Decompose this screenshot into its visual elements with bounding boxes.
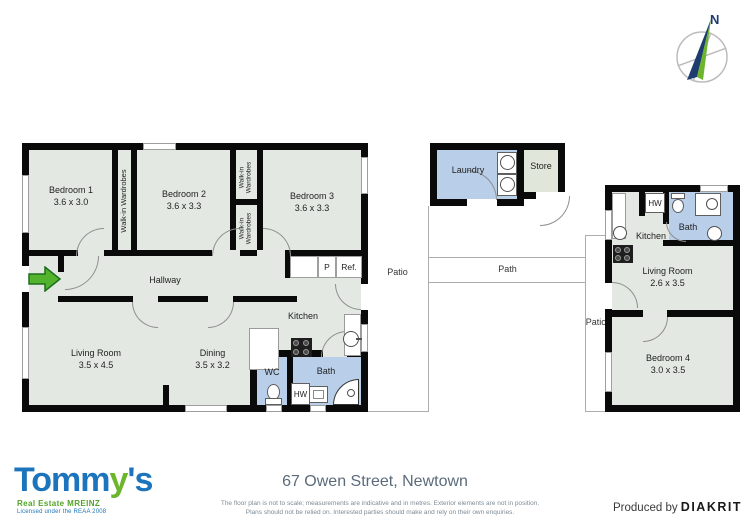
burner bbox=[303, 340, 309, 346]
room-label-kitchen-unit: Kitchen bbox=[630, 230, 672, 242]
wardrobe-label-line1: Walk-in bbox=[239, 151, 246, 205]
room-name: Laundry bbox=[437, 164, 499, 176]
brand-text: Tomm bbox=[14, 461, 109, 499]
wall bbox=[605, 405, 740, 412]
shower-drain-icon bbox=[706, 198, 718, 210]
room-label-bedroom1: Bedroom 1 3.6 x 3.0 bbox=[29, 184, 113, 208]
patio-outline bbox=[428, 206, 429, 412]
room-name: Living Room bbox=[36, 347, 156, 359]
brand-y: y bbox=[109, 461, 127, 499]
wall bbox=[58, 296, 133, 302]
burner bbox=[615, 255, 621, 261]
wall bbox=[430, 143, 437, 206]
window bbox=[185, 405, 227, 412]
wall bbox=[517, 150, 524, 206]
door-arc-store bbox=[540, 196, 570, 226]
room-dims: 3.6 x 3.3 bbox=[263, 202, 361, 214]
patio-outline bbox=[368, 411, 429, 412]
window bbox=[361, 324, 368, 352]
room-dims: 3.6 x 3.0 bbox=[29, 196, 113, 208]
wall bbox=[524, 192, 536, 199]
wardrobe-label-line2: Wardrobes bbox=[246, 151, 253, 205]
room-name: Bath bbox=[668, 221, 708, 233]
burner bbox=[624, 255, 630, 261]
room-label-hallway: Hallway bbox=[120, 274, 210, 286]
room-name: WC bbox=[258, 366, 286, 378]
burner bbox=[303, 349, 309, 355]
room-label-bath-main: Bath bbox=[302, 365, 350, 377]
burner bbox=[293, 340, 299, 346]
window bbox=[310, 405, 326, 412]
window bbox=[22, 327, 29, 379]
room-label-bedroom2: Bedroom 2 3.6 x 3.3 bbox=[137, 188, 231, 212]
wardrobe-label-line1: Walk-in bbox=[239, 202, 246, 256]
room-name: Bedroom 2 bbox=[137, 188, 231, 200]
wardrobe-label-3: Walk-in Wardrobes bbox=[239, 202, 254, 256]
vanity-basin bbox=[313, 390, 324, 399]
hw-label-unit: HW bbox=[645, 193, 665, 213]
wardrobe-label-2: Walk-in Wardrobes bbox=[239, 151, 254, 205]
property-address: 67 Owen Street, Newtown bbox=[180, 473, 570, 491]
room-dims: 3.0 x 3.5 bbox=[612, 364, 724, 376]
path-outline bbox=[428, 282, 585, 283]
disclaimer-line2: Plans should not be relied on. Intereste… bbox=[115, 508, 645, 517]
brand-logo: Tommy's bbox=[14, 461, 152, 500]
patio-outline bbox=[585, 235, 605, 236]
room-name: Bedroom 4 bbox=[612, 352, 724, 364]
area-label-path: Path bbox=[480, 263, 535, 275]
brand-license: Licensed under the REAA 2008 bbox=[17, 509, 106, 515]
wardrobe-label-line2: Wardrobes bbox=[246, 202, 253, 256]
path-outline bbox=[428, 257, 585, 258]
room-name: Hallway bbox=[120, 274, 210, 286]
wall bbox=[733, 185, 740, 412]
stove-icon-unit bbox=[613, 245, 633, 263]
dryer-icon bbox=[500, 177, 515, 192]
room-name: Bedroom 1 bbox=[29, 184, 113, 196]
stove-icon bbox=[291, 338, 312, 357]
wall bbox=[667, 310, 740, 317]
wardrobe-label-1: Walk-in Wardrobes bbox=[120, 151, 130, 251]
tub-tap-icon bbox=[347, 389, 355, 397]
producer-credit: Produced by DIAKRIT bbox=[613, 500, 742, 514]
room-name: Bedroom 3 bbox=[263, 190, 361, 202]
window bbox=[605, 352, 612, 392]
room-dims: 3.6 x 3.3 bbox=[137, 200, 231, 212]
brand-subtitle: Real Estate MREINZ bbox=[17, 499, 100, 508]
window bbox=[22, 175, 29, 233]
producer-name: DIAKRIT bbox=[681, 500, 742, 514]
burner bbox=[624, 247, 630, 253]
burner bbox=[293, 349, 299, 355]
room-label-living-unit: Living Room 2.6 x 3.5 bbox=[610, 265, 725, 289]
wall bbox=[430, 199, 467, 206]
room-name: Kitchen bbox=[630, 230, 672, 242]
wall bbox=[233, 296, 297, 302]
wall bbox=[663, 240, 733, 246]
compass-icon: N bbox=[660, 8, 750, 98]
room-label-bath-unit: Bath bbox=[668, 221, 708, 233]
window bbox=[361, 157, 368, 194]
floorplan-canvas: N P Ref. bbox=[0, 0, 750, 530]
room-label-kitchen-main: Kitchen bbox=[265, 310, 341, 322]
wall bbox=[22, 143, 368, 150]
produced-by-text: Produced by bbox=[613, 502, 678, 514]
wall bbox=[497, 199, 518, 206]
window bbox=[143, 143, 176, 150]
room-label-dining: Dining 3.5 x 3.2 bbox=[165, 347, 260, 371]
room-label-wc: WC bbox=[258, 366, 286, 378]
wall bbox=[605, 310, 643, 317]
fridge-label: Ref. bbox=[341, 262, 357, 272]
area-name: Patio bbox=[370, 266, 425, 278]
wall bbox=[163, 385, 169, 405]
room-name: Store bbox=[522, 160, 560, 172]
washer-icon bbox=[500, 155, 515, 170]
room-dims: 2.6 x 3.5 bbox=[610, 277, 725, 289]
patio-outline bbox=[585, 411, 605, 412]
sink-icon-unit bbox=[613, 226, 627, 240]
room-label-bedroom4: Bedroom 4 3.0 x 3.5 bbox=[612, 352, 724, 376]
wall bbox=[158, 296, 208, 302]
room-name: Kitchen bbox=[265, 310, 341, 322]
entry-arrow-icon bbox=[28, 266, 62, 292]
toilet-icon-unit bbox=[672, 199, 684, 213]
room-label-living-main: Living Room 3.5 x 4.5 bbox=[36, 347, 156, 371]
room-name: Bath bbox=[302, 365, 350, 377]
tap-icon bbox=[356, 338, 362, 340]
pantry-cell: P bbox=[318, 256, 336, 278]
room-dims: 3.5 x 3.2 bbox=[165, 359, 260, 371]
burner bbox=[615, 247, 621, 253]
pantry-label: P bbox=[324, 262, 330, 272]
room-dims: 3.5 x 4.5 bbox=[36, 359, 156, 371]
window bbox=[700, 185, 728, 192]
window bbox=[266, 405, 282, 412]
brand-apostrophe-s: 's bbox=[127, 461, 152, 499]
toilet-cistern bbox=[265, 398, 282, 405]
wall bbox=[430, 143, 565, 150]
compass-north-label: N bbox=[710, 12, 719, 27]
room-label-store: Store bbox=[522, 160, 560, 172]
disclaimer-line1: The floor plan is not to scale; measurem… bbox=[115, 499, 645, 508]
closet-cell bbox=[290, 256, 318, 278]
patio-door-opening bbox=[361, 284, 368, 310]
basin-icon-unit bbox=[707, 226, 722, 241]
window bbox=[605, 210, 612, 240]
room-label-laundry: Laundry bbox=[437, 164, 499, 176]
fridge-cell: Ref. bbox=[336, 256, 362, 278]
area-name: Path bbox=[480, 263, 535, 275]
room-name: Living Room bbox=[610, 265, 725, 277]
room-label-bedroom3: Bedroom 3 3.6 x 3.3 bbox=[263, 190, 361, 214]
hw-label: HW bbox=[291, 383, 310, 405]
area-label-patio-main: Patio bbox=[370, 266, 425, 278]
room-name: Dining bbox=[165, 347, 260, 359]
